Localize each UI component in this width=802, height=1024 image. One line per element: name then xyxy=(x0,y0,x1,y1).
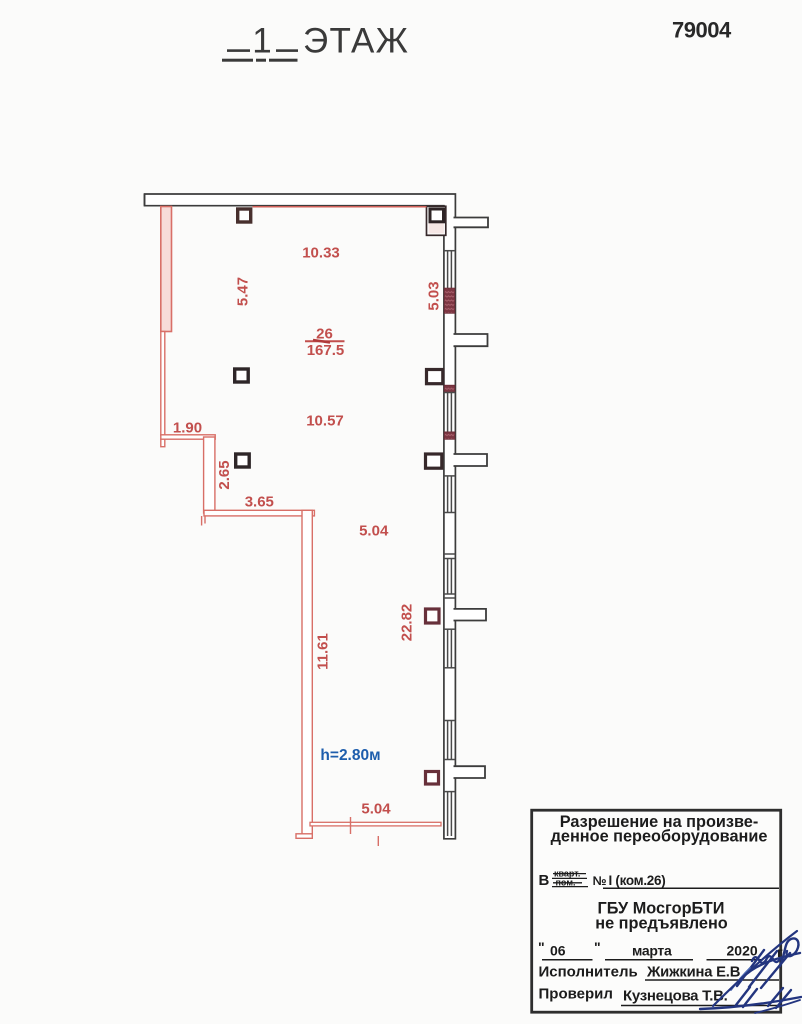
svg-text:Проверил: Проверил xyxy=(539,986,613,1003)
svg-text:5.47: 5.47 xyxy=(235,277,252,306)
svg-text:": " xyxy=(538,939,545,955)
svg-text:5.04: 5.04 xyxy=(361,801,391,818)
svg-text:марта: марта xyxy=(632,943,672,959)
svg-text:Кузнецова Т.В.: Кузнецова Т.В. xyxy=(623,988,728,1005)
svg-text:Исполнитель: Исполнитель xyxy=(539,964,638,981)
svg-text:2020: 2020 xyxy=(727,943,758,959)
svg-text:10.57: 10.57 xyxy=(306,413,344,430)
svg-text:22.82: 22.82 xyxy=(399,604,416,642)
svg-text:денное переоборудование: денное переоборудование xyxy=(551,828,768,846)
svg-text:": " xyxy=(594,939,601,955)
svg-text:№: № xyxy=(593,874,607,888)
svg-text:79004: 79004 xyxy=(672,18,732,43)
svg-text:06: 06 xyxy=(550,943,566,959)
svg-text:10.33: 10.33 xyxy=(302,245,340,262)
svg-text:1: 1 xyxy=(252,22,271,61)
svg-text:167.5: 167.5 xyxy=(307,342,345,359)
svg-text:Жижкина Е.В: Жижкина Е.В xyxy=(646,965,741,981)
svg-text:5.04: 5.04 xyxy=(359,523,389,540)
svg-text:I (ком.26): I (ком.26) xyxy=(609,873,666,888)
svg-text:h=2.80м: h=2.80м xyxy=(320,747,380,764)
svg-text:не предъявлено: не предъявлено xyxy=(595,915,728,933)
svg-text:2.65: 2.65 xyxy=(216,460,233,489)
svg-text:1.90: 1.90 xyxy=(173,420,202,437)
svg-text:В: В xyxy=(539,872,550,889)
svg-text:5.03: 5.03 xyxy=(426,281,443,310)
svg-text:ЭТАЖ: ЭТАЖ xyxy=(303,22,409,61)
svg-text:3.65: 3.65 xyxy=(245,494,274,511)
svg-text:11.61: 11.61 xyxy=(315,633,332,670)
